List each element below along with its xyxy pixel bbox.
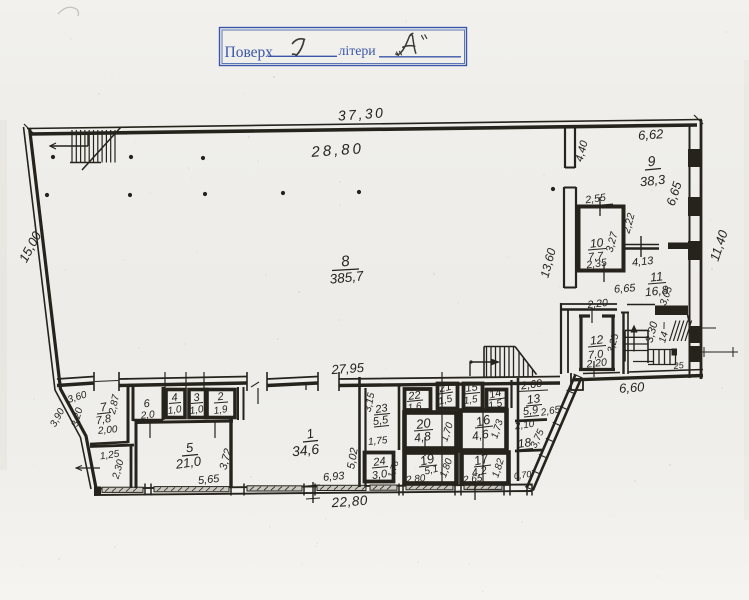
svg-text:6,93: 6,93 <box>323 470 346 484</box>
svg-text:1,75: 1,75 <box>367 435 388 448</box>
svg-text:27,95: 27,95 <box>330 360 365 377</box>
svg-text:1,0: 1,0 <box>189 404 205 417</box>
svg-text:6,62: 6,62 <box>638 126 665 143</box>
svg-text:Поверх: Поверх <box>225 44 274 61</box>
svg-text:22,80: 22,80 <box>330 493 368 511</box>
svg-text:2,20: 2,20 <box>586 297 609 311</box>
svg-text:4,8: 4,8 <box>413 429 432 445</box>
svg-text:38,3: 38,3 <box>639 172 666 190</box>
svg-text:6,60: 6,60 <box>619 379 646 396</box>
svg-text:2,0: 2,0 <box>139 409 155 422</box>
svg-text:4,6: 4,6 <box>471 427 490 444</box>
svg-text:1,0: 1,0 <box>167 404 183 417</box>
svg-text:4,13: 4,13 <box>631 255 654 269</box>
svg-text:5,65: 5,65 <box>197 473 220 487</box>
svg-text:2,20: 2,20 <box>585 356 608 370</box>
svg-text:1,5: 1,5 <box>463 394 479 407</box>
svg-text:34,6: 34,6 <box>291 441 320 460</box>
svg-text:1,9: 1,9 <box>213 404 229 417</box>
svg-text:25: 25 <box>672 360 685 371</box>
svg-text:2,65: 2,65 <box>461 473 483 486</box>
svg-text:2,80: 2,80 <box>404 473 426 486</box>
svg-text:2,00: 2,00 <box>97 424 119 437</box>
svg-text:6,65: 6,65 <box>614 282 637 296</box>
svg-text:37,30: 37,30 <box>337 104 386 123</box>
svg-text:літери: літери <box>339 43 377 58</box>
